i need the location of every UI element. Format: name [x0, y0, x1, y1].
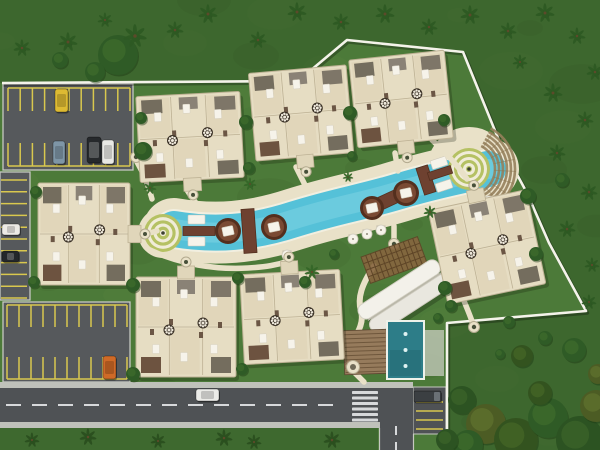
bush-highlight	[531, 383, 545, 397]
palm-trunk	[249, 183, 251, 185]
palm-trunk	[21, 47, 24, 50]
bed	[186, 158, 193, 167]
furniture	[218, 322, 222, 328]
bush-highlight	[513, 347, 526, 360]
bush-highlight	[54, 54, 63, 63]
bed	[214, 109, 221, 118]
roof-terrace	[43, 265, 61, 281]
bed	[270, 130, 278, 140]
palm-trunk	[584, 119, 587, 122]
palm-trunk	[566, 228, 569, 231]
pool-light	[404, 348, 408, 352]
island-daybed	[222, 225, 235, 236]
palm-trunk	[133, 34, 137, 38]
roof-terrace	[141, 357, 161, 373]
palm-trunk	[384, 13, 387, 16]
car-roof	[104, 145, 112, 159]
bush-highlight	[29, 277, 36, 284]
sun-lounger	[188, 237, 205, 246]
rosette-petal	[98, 225, 100, 227]
condo-unit	[286, 113, 318, 155]
rosette-petal	[165, 331, 167, 333]
bush-highlight	[128, 368, 136, 376]
truck-cab	[434, 392, 440, 401]
bush-highlight	[244, 163, 251, 170]
palm-trunk	[257, 39, 260, 42]
bush-highlight	[136, 113, 143, 120]
rosette-petal	[64, 236, 66, 238]
bush-highlight	[233, 273, 240, 280]
crosswalk-stripe	[352, 402, 378, 405]
palm-trunk	[588, 301, 590, 303]
bed	[317, 331, 324, 340]
roof-terrace	[211, 357, 231, 373]
bed	[106, 204, 113, 213]
bush-highlight	[470, 408, 493, 431]
stair-tower	[128, 225, 141, 242]
bush-highlight	[446, 301, 453, 308]
bush-highlight	[496, 350, 502, 356]
roof-terrace	[259, 141, 280, 157]
umbrella-tip	[352, 238, 354, 240]
bush-highlight	[348, 152, 354, 158]
entry-planter	[184, 260, 188, 264]
furniture	[169, 319, 173, 325]
crosswalk-stripe	[352, 413, 378, 416]
roof-terrace	[361, 127, 382, 143]
rosette-petal	[69, 234, 71, 236]
bed	[183, 104, 190, 113]
pool-light	[404, 364, 408, 368]
bed	[398, 121, 406, 131]
furniture	[431, 91, 436, 97]
roof-terrace	[211, 281, 231, 297]
bush-highlight	[237, 364, 244, 371]
green-median	[0, 428, 378, 450]
palm-trunk	[331, 439, 334, 442]
roof-terrace	[141, 281, 161, 297]
roof-terrace	[43, 187, 61, 203]
furniture	[150, 329, 154, 335]
bed	[285, 283, 292, 292]
palm-trunk	[544, 12, 547, 15]
rosette-petal	[101, 226, 103, 228]
bush-highlight	[499, 422, 525, 448]
bed	[259, 334, 266, 343]
island-daybed	[400, 187, 413, 198]
rosette-petal	[95, 229, 97, 231]
palm-trunk	[591, 264, 593, 266]
rosette-center	[202, 322, 205, 325]
palm-trunk	[588, 191, 591, 194]
rosette-petal	[202, 319, 204, 321]
umbrella-tip	[366, 233, 368, 235]
spa-circle-center	[350, 364, 356, 370]
bed	[370, 116, 378, 126]
rosette-petal	[65, 238, 67, 240]
rosette-petal	[96, 226, 98, 228]
crosswalk-stripe	[352, 397, 378, 400]
stair-tower	[281, 261, 299, 275]
patio	[424, 330, 444, 376]
rosette-petal	[171, 329, 173, 331]
furniture	[367, 104, 372, 110]
rosette-petal	[165, 326, 167, 328]
rosette-petal	[65, 234, 67, 236]
roof-terrace	[141, 99, 162, 114]
rosette-center	[98, 228, 101, 231]
bed	[366, 75, 374, 85]
roof-terrace	[107, 187, 125, 203]
rosette-petal	[69, 238, 71, 240]
resort-master-plan	[0, 0, 600, 450]
bed	[458, 269, 467, 279]
palm-trunk	[428, 26, 431, 29]
rosette-petal	[199, 322, 201, 324]
condo-unit	[386, 99, 418, 142]
palm-trunk	[223, 437, 226, 440]
bed	[79, 260, 86, 269]
roof-terrace	[217, 160, 238, 175]
roof-terrace	[420, 55, 441, 71]
rosette-petal	[98, 232, 100, 234]
roof-terrace	[214, 96, 235, 111]
bed	[323, 84, 331, 94]
roof-terrace	[254, 75, 275, 91]
stair-tower	[183, 177, 201, 191]
palm-trunk	[507, 30, 510, 33]
roof-terrace	[318, 341, 339, 356]
bed	[216, 150, 223, 159]
bush-highlight	[136, 144, 146, 154]
bed	[266, 89, 274, 99]
bush-highlight	[345, 107, 353, 115]
car-roof	[55, 146, 63, 159]
bed	[288, 339, 295, 348]
rosette-petal	[199, 324, 201, 326]
rosette-center	[67, 236, 70, 239]
rosette-petal	[70, 236, 72, 238]
rosette-petal	[96, 231, 98, 233]
car-roof	[7, 226, 15, 233]
car-roof	[57, 94, 66, 107]
bush-highlight	[439, 115, 446, 122]
south-sidewalk	[0, 422, 380, 428]
rosette-center	[168, 329, 171, 332]
north-sidewalk	[0, 382, 413, 388]
palm-trunk	[67, 41, 70, 44]
bush-highlight	[102, 39, 125, 62]
island-daybed	[366, 202, 379, 213]
bush-highlight	[540, 332, 548, 340]
entry-planter	[143, 232, 147, 236]
furniture	[414, 101, 419, 107]
bush-highlight	[531, 248, 539, 256]
rosette-petal	[102, 229, 104, 231]
car-roof	[89, 142, 99, 158]
car-roof	[201, 391, 214, 399]
bed	[181, 290, 188, 299]
palm-trunk	[429, 211, 431, 213]
palm-trunk	[157, 440, 159, 442]
palm-trunk	[207, 13, 210, 16]
roof-terrace	[322, 69, 343, 85]
bush-highlight	[451, 389, 467, 405]
umbrella-tip	[380, 229, 382, 231]
crosswalk-stripe	[352, 419, 378, 422]
palm-trunk	[576, 35, 579, 38]
rosette-petal	[199, 319, 201, 321]
rosette-petal	[168, 332, 170, 334]
bush-highlight	[565, 340, 579, 354]
bed	[421, 69, 429, 79]
furniture	[153, 140, 157, 146]
rosette-petal	[204, 324, 206, 326]
rosette-petal	[205, 322, 207, 324]
rosette-petal	[168, 326, 170, 328]
furniture	[305, 320, 309, 326]
condo-unit	[174, 138, 207, 179]
palm-trunk	[149, 187, 151, 189]
bed	[293, 79, 301, 89]
palm-trunk	[104, 19, 106, 21]
condo-unit	[170, 329, 199, 375]
spiral-garden-center	[161, 231, 165, 235]
palm-trunk	[296, 11, 299, 14]
bed	[326, 125, 334, 135]
palm-trunk	[556, 152, 559, 155]
palm-trunk	[174, 29, 177, 32]
stair-tower	[178, 266, 195, 279]
bush-highlight	[504, 317, 511, 324]
furniture	[266, 117, 271, 123]
bush-highlight	[440, 282, 448, 290]
bed	[448, 225, 457, 235]
bed	[505, 213, 514, 223]
rosette-petal	[170, 331, 172, 333]
palm-trunk	[519, 61, 521, 63]
palm-trunk	[347, 176, 349, 178]
bush-highlight	[31, 187, 38, 194]
bed	[474, 211, 483, 221]
palm-trunk	[31, 439, 33, 441]
bush-highlight	[438, 431, 451, 444]
crosswalk-stripe	[352, 408, 378, 411]
furniture	[223, 130, 227, 136]
furniture	[314, 116, 319, 122]
bush-highlight	[522, 190, 531, 199]
walkway-path	[395, 153, 398, 171]
spiral-garden-center	[467, 167, 471, 171]
roof-terrace	[107, 265, 125, 281]
pool-light	[404, 332, 408, 336]
bush-highlight	[128, 279, 136, 287]
bed	[53, 204, 60, 213]
furniture	[332, 105, 337, 111]
bush-highlight	[434, 314, 440, 320]
pool-bridge	[183, 227, 215, 236]
roof-terrace	[328, 135, 349, 151]
bed	[487, 270, 496, 280]
rosette-petal	[67, 239, 69, 241]
bush-highlight	[561, 421, 589, 449]
planter-shrub	[472, 325, 476, 329]
crosswalk-stripe	[352, 391, 378, 394]
bed	[315, 288, 322, 297]
bush-highlight	[330, 250, 336, 256]
sun-lounger	[188, 215, 205, 224]
furniture	[96, 239, 100, 245]
pool-bridge	[241, 209, 257, 254]
bed	[153, 298, 160, 307]
roof-terrace	[144, 164, 165, 179]
palm-trunk	[594, 71, 597, 74]
bed	[392, 65, 400, 75]
palm-trunk	[340, 21, 343, 24]
palm-trunk	[469, 14, 472, 17]
rosette-petal	[165, 329, 167, 331]
bush-highlight	[241, 116, 249, 124]
island-daybed	[268, 221, 281, 232]
bed	[297, 135, 305, 145]
bed	[153, 345, 160, 354]
bed	[181, 353, 188, 362]
roof-terrace	[245, 277, 266, 292]
bed	[211, 298, 218, 307]
rosette-petal	[67, 233, 69, 235]
bed	[514, 257, 523, 267]
rosette-petal	[202, 325, 204, 327]
palm-trunk	[253, 441, 255, 443]
furniture	[256, 320, 260, 326]
condo-unit	[276, 318, 307, 360]
furniture	[199, 332, 203, 338]
furniture	[324, 310, 328, 316]
palm-trunk	[87, 436, 90, 439]
rosette-petal	[101, 231, 103, 233]
bed	[53, 252, 60, 261]
bush-highlight	[300, 277, 307, 284]
bush-highlight	[87, 64, 99, 76]
bed	[426, 111, 434, 121]
rosette-petal	[170, 326, 172, 328]
bed	[79, 196, 86, 205]
roof-terrace	[315, 274, 336, 289]
bed	[106, 252, 113, 261]
palm-trunk	[311, 271, 313, 273]
condo-unit	[70, 236, 97, 283]
roof-terrace	[248, 345, 269, 360]
car-roof	[105, 361, 114, 374]
bed	[154, 112, 161, 121]
bed	[257, 291, 264, 300]
furniture	[51, 236, 55, 242]
bed	[156, 153, 163, 162]
bush-highlight	[557, 174, 565, 182]
furniture	[204, 140, 208, 146]
car-roof	[7, 253, 14, 260]
bed	[211, 345, 218, 354]
site-plan-screenshot	[0, 0, 600, 450]
lap-pool-deep-end	[390, 350, 421, 376]
palm-trunk	[552, 92, 555, 95]
rosette-petal	[204, 319, 206, 321]
furniture	[113, 229, 117, 235]
furniture	[68, 226, 72, 232]
